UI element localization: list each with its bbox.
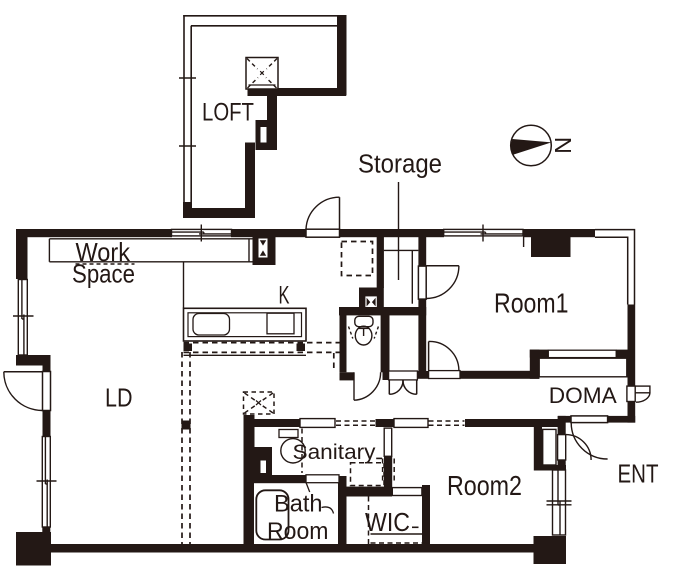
svg-text:LD: LD bbox=[105, 383, 133, 413]
svg-text:Room: Room bbox=[267, 518, 329, 545]
svg-text:Bath: Bath bbox=[274, 491, 323, 518]
svg-text:ENT: ENT bbox=[618, 461, 659, 489]
svg-text:Room2: Room2 bbox=[447, 470, 522, 501]
svg-text:Space: Space bbox=[72, 259, 135, 289]
svg-text:Sanitary: Sanitary bbox=[293, 441, 377, 464]
svg-text:Storage: Storage bbox=[358, 151, 442, 179]
svg-text:N: N bbox=[550, 137, 576, 154]
svg-text:Room1: Room1 bbox=[494, 288, 569, 319]
svg-text:WIC: WIC bbox=[365, 507, 410, 537]
svg-text:LOFT: LOFT bbox=[202, 99, 254, 127]
svg-text:DOMA: DOMA bbox=[549, 383, 617, 408]
svg-text:K: K bbox=[279, 282, 290, 310]
